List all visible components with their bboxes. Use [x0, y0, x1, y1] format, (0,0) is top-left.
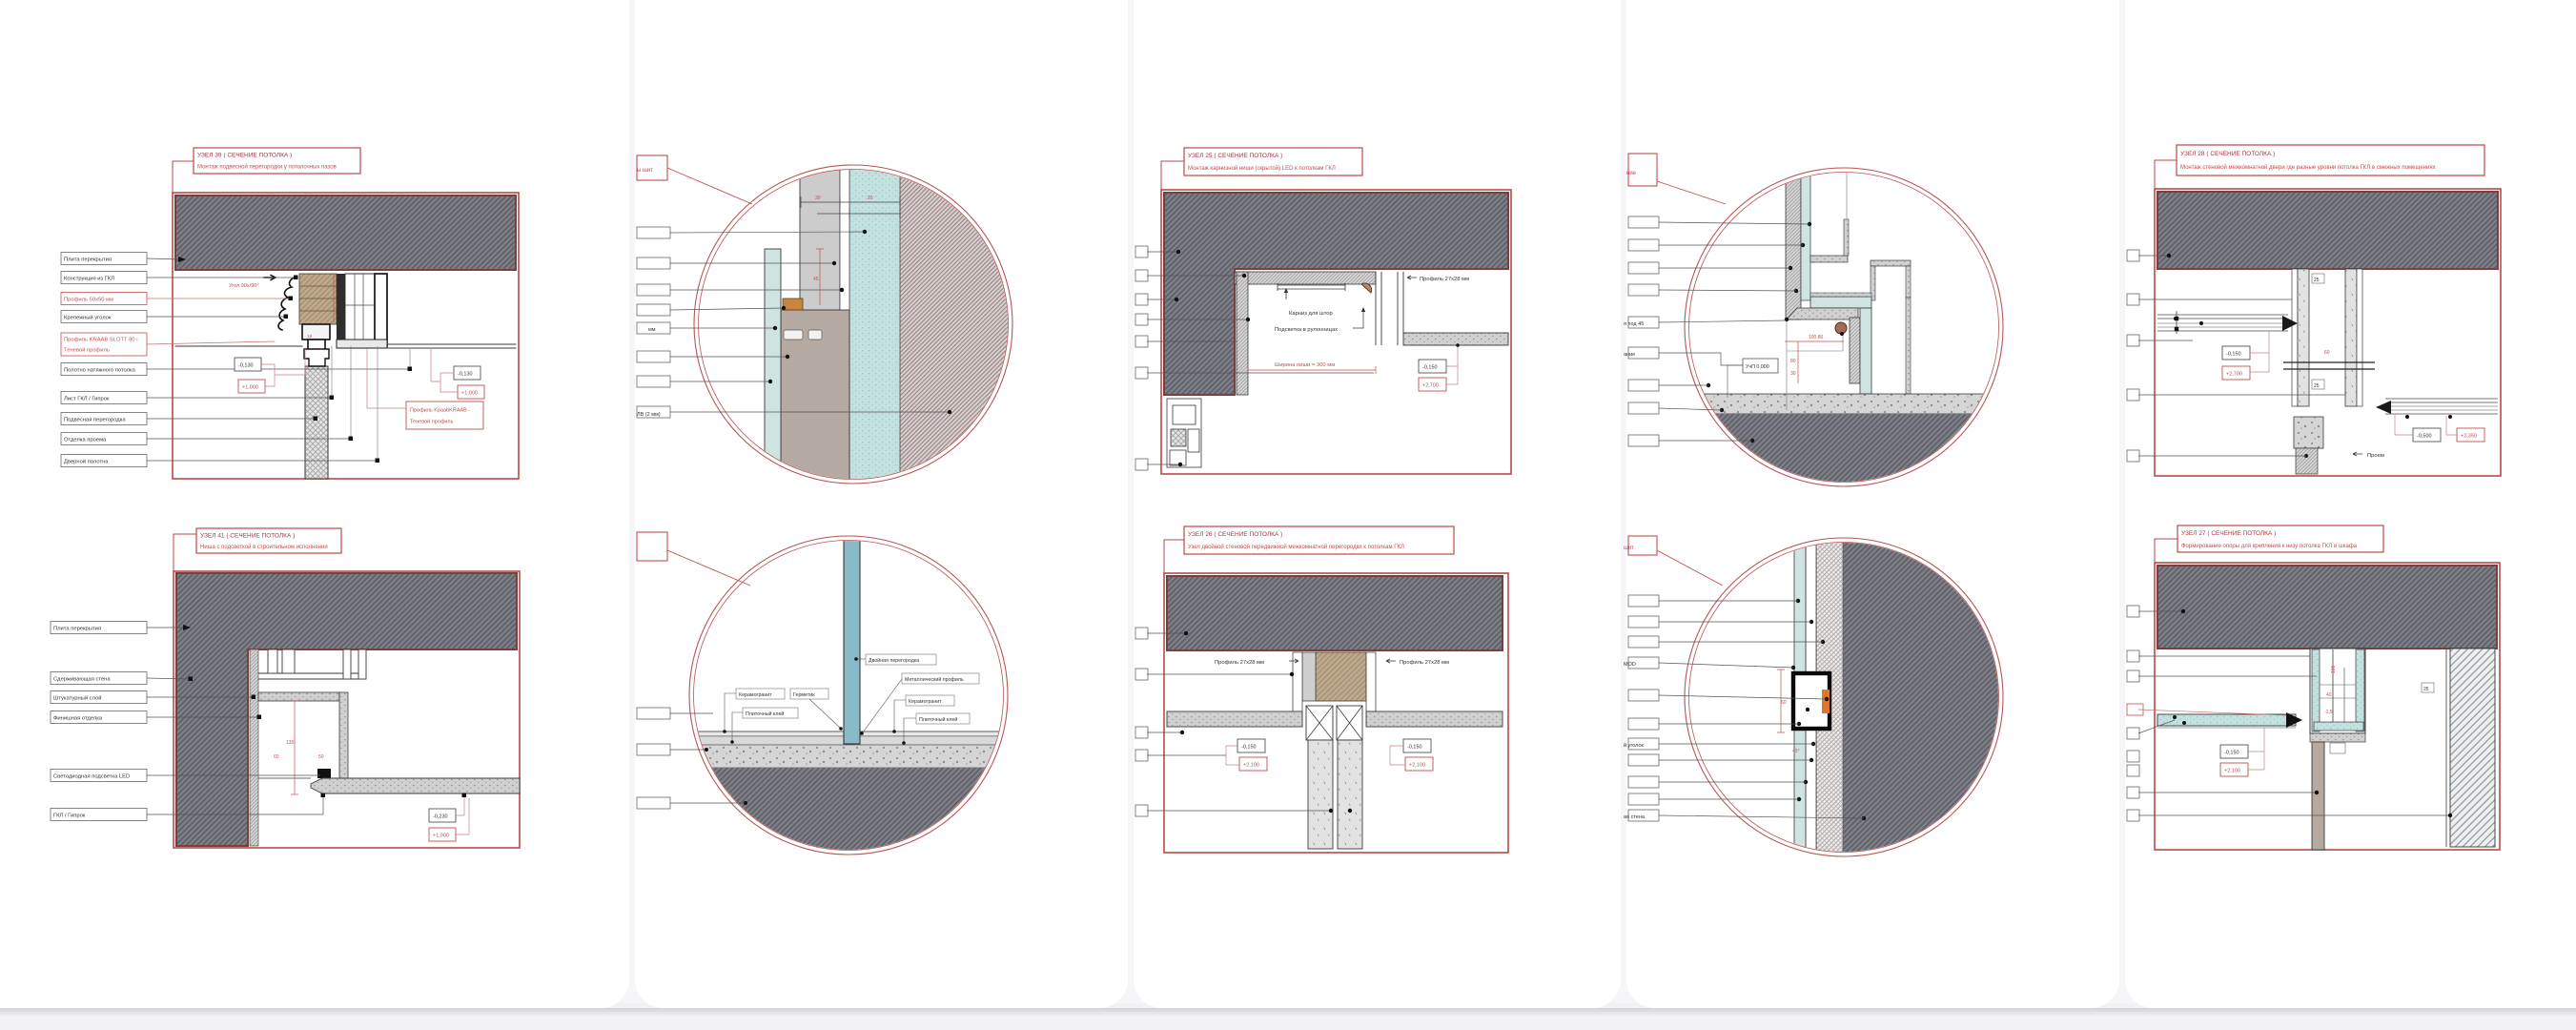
svg-text:Металлический профиль: Металлический профиль: [905, 676, 964, 683]
svg-text:Профиль 27х28 мм: Профиль 27х28 мм: [1215, 660, 1264, 666]
svg-text:Полотно натяжного потолка: Полотно натяжного потолка: [64, 368, 136, 374]
svg-text:УЗЕЛ 27 ( СЕЧЕНИЕ ПОТОЛКА ): УЗЕЛ 27 ( СЕЧЕНИЕ ПОТОЛКА ): [2181, 530, 2276, 537]
svg-text:50: 50: [318, 754, 324, 760]
svg-text:+1,000: +1,000: [461, 391, 478, 397]
svg-text:Дверной полотна: Дверной полотна: [64, 459, 109, 465]
svg-text:Профиль 27х28 мм: Профиль 27х28 мм: [1400, 660, 1449, 666]
svg-text:Плита перекрытия: Плита перекрытия: [64, 257, 112, 263]
svg-text:135: 135: [286, 740, 295, 746]
svg-text:мм: мм: [648, 327, 656, 333]
svg-text:60: 60: [2324, 350, 2330, 356]
svg-text:УЗЕЛ 28 ( СЕЧЕНИЕ ПОТОЛКА ): УЗЕЛ 28 ( СЕЧЕНИЕ ПОТОЛКА ): [2180, 151, 2275, 157]
svg-text:+2,100: +2,100: [1243, 763, 1259, 769]
svg-text:Плита перекрытия: Плита перекрытия: [53, 627, 101, 632]
svg-text:20: 20: [868, 196, 873, 201]
svg-text:Керамогранит: Керамогранит: [909, 699, 942, 705]
svg-text:+1,000: +1,000: [242, 385, 258, 391]
svg-text:Отделка проема: Отделка проема: [64, 438, 107, 443]
svg-text:Двойная перегородка: Двойная перегородка: [869, 657, 919, 664]
svg-text:+2,700: +2,700: [2226, 372, 2242, 378]
svg-text:Профиль 27х28 мм: Профиль 27х28 мм: [1420, 277, 1469, 282]
svg-text:+2,100: +2,100: [1409, 763, 1425, 769]
svg-text:УЗЕЛ 25 ( СЕЧЕНИЕ ПОТОЛКА ): УЗЕЛ 25 ( СЕЧЕНИЕ ПОТОЛКА ): [1188, 153, 1282, 159]
svg-text:Проем: Проем: [2367, 453, 2384, 459]
svg-text:Светодиодная подсветка LED: Светодиодная подсветка LED: [53, 774, 130, 780]
svg-text:-0,130: -0,130: [458, 372, 473, 378]
svg-text:-0,150: -0,150: [1422, 365, 1438, 371]
svg-text:Герметик: Герметик: [793, 692, 815, 698]
svg-text:УчП 0,000: УчП 0,000: [1746, 364, 1769, 370]
svg-text:ние: ние: [1626, 171, 1637, 176]
svg-text:100 80: 100 80: [1809, 335, 1824, 340]
svg-text:Профиль 50х50 мм: Профиль 50х50 мм: [64, 298, 113, 303]
svg-text:80: 80: [1790, 359, 1796, 364]
svg-text:Конструкция из ГКЛ: Конструкция из ГКЛ: [64, 277, 114, 282]
svg-text:30: 30: [1790, 371, 1796, 377]
svg-text:+1,900: +1,900: [433, 834, 449, 839]
svg-text:Теневой профиль: Теневой профиль: [410, 419, 454, 425]
svg-text:Финишная отделка: Финишная отделка: [53, 716, 103, 722]
svg-text:Плиточный клей: Плиточный клей: [919, 716, 957, 723]
svg-text:УЗЕЛ 26 ( СЕЧЕНИЕ ПОТОЛКА ): УЗЕЛ 26 ( СЕЧЕНИЕ ПОТОЛКА ): [1188, 531, 1282, 538]
svg-text:45: 45: [813, 277, 819, 282]
svg-text:Ширина ниши = 300 мм: Ширина ниши = 300 мм: [1275, 362, 1335, 368]
svg-text:Керамогранит: Керамогранит: [739, 692, 772, 698]
svg-text:-0,230: -0,230: [433, 814, 448, 820]
svg-text:Формирование опоры для креплен: Формирование опоры для крепления к низу …: [2181, 544, 2358, 549]
svg-text:100: 100: [2331, 665, 2337, 673]
svg-text:Ниша с подсветкой в строительн: Ниша с подсветкой в строительном исполне…: [200, 544, 328, 550]
svg-text:Угол 90х/90°: Угол 90х/90°: [229, 283, 259, 289]
svg-text:Лист ГКЛ / Гипрок: Лист ГКЛ / Гипрок: [64, 397, 110, 402]
svg-text:ая стена: ая стена: [1624, 814, 1646, 820]
svg-text:ЛВ (2 мм): ЛВ (2 мм): [637, 412, 661, 418]
svg-text:я под 45: я под 45: [1624, 321, 1644, 327]
svg-text:Сдерживающая стена: Сдерживающая стена: [53, 677, 111, 683]
svg-text:25: 25: [2314, 383, 2320, 389]
svg-text:ание: ание: [1624, 352, 1635, 358]
svg-text:40: 40: [2326, 692, 2332, 698]
svg-text:Плиточный клей: Плиточный клей: [746, 711, 784, 717]
svg-text:60: 60: [274, 754, 279, 760]
svg-text:25: 25: [2314, 278, 2320, 283]
svg-text:Подвесная перегородка: Подвесная перегородка: [64, 418, 126, 423]
svg-text:25: 25: [2423, 687, 2429, 692]
svg-text:УЗЕЛ 39 ( СЕЧЕНИЕ ПОТОЛКА ): УЗЕЛ 39 ( СЕЧЕНИЕ ПОТОЛКА ): [197, 153, 292, 159]
svg-text:30: 30: [815, 196, 821, 201]
svg-text:Профиль KRAAB SLOTT 80 -: Профиль KRAAB SLOTT 80 -: [64, 338, 138, 343]
svg-text:Монтаж карнизной ниши (скрытой: Монтаж карнизной ниши (скрытой) LED к по…: [1188, 165, 1336, 172]
svg-text:Карниз для штор: Карниз для штор: [1289, 311, 1333, 317]
svg-text:16: 16: [307, 334, 313, 340]
svg-text:Штукатурный слой: Штукатурный слой: [53, 695, 102, 702]
svg-text:ы шит: ы шит: [637, 168, 653, 174]
svg-text:Подсветка в рулонницах: Подсветка в рулонницах: [1275, 327, 1338, 333]
svg-text:MOD: MOD: [1624, 662, 1636, 668]
svg-text:45°: 45°: [1792, 749, 1800, 754]
svg-text:Узел двойной стеновой передвиж: Узел двойной стеновой передвижной межком…: [1188, 544, 1404, 550]
svg-text:+2,100: +2,100: [2224, 769, 2240, 774]
svg-text:Теневой профиль: Теневой профиль: [64, 347, 110, 354]
svg-text:60: 60: [1781, 700, 1787, 706]
svg-text:+2,700: +2,700: [1422, 383, 1439, 389]
svg-text:Крепежный уголок: Крепежный уголок: [64, 315, 112, 321]
svg-text:Монтаж подвесной перегородки у: Монтаж подвесной перегородки у потолочны…: [197, 164, 337, 171]
svg-text:й уголок: й уголок: [1624, 742, 1645, 749]
svg-text:-0,150: -0,150: [1241, 745, 1257, 751]
svg-text:Профиль KpaabKRAAB -: Профиль KpaabKRAAB -: [410, 408, 470, 414]
svg-text:-0,150: -0,150: [2224, 751, 2239, 756]
svg-text:ГКЛ / Гипрок: ГКЛ / Гипрок: [53, 814, 86, 819]
svg-text:-0,500: -0,500: [2417, 434, 2432, 440]
svg-text:УЗЕЛ 41 ( СЕЧЕНИЕ ПОТОЛКА ): УЗЕЛ 41 ( СЕЧЕНИЕ ПОТОЛКА ): [200, 533, 295, 540]
svg-text:шит: шит: [1624, 546, 1634, 551]
svg-text:-0,130: -0,130: [238, 363, 254, 369]
svg-text:Монтаж стеновой межкомнатной д: Монтаж стеновой межкомнатной двери где р…: [2180, 164, 2436, 171]
svg-text:-0,150: -0,150: [2226, 352, 2241, 358]
svg-text:-0,150: -0,150: [1407, 745, 1422, 751]
svg-text:-1,5: -1,5: [2324, 710, 2333, 715]
svg-text:+2,350: +2,350: [2461, 434, 2477, 440]
